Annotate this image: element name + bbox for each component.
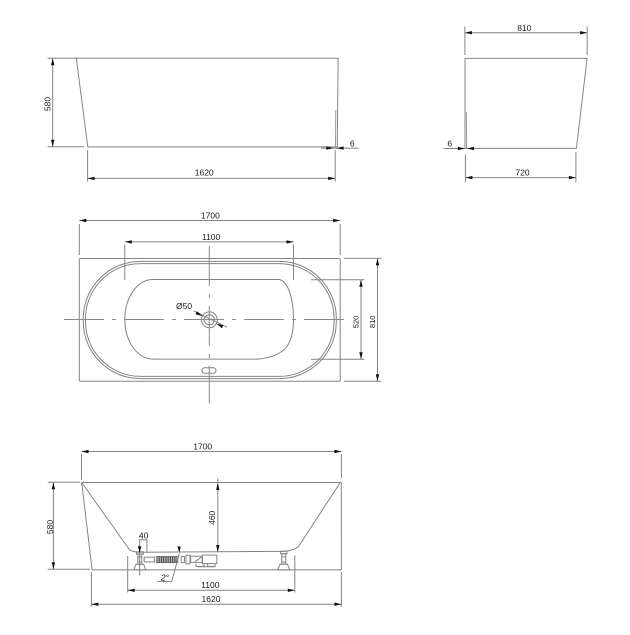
svg-text:520: 520 <box>352 316 361 329</box>
svg-text:810: 810 <box>368 315 377 328</box>
svg-text:6: 6 <box>350 139 355 149</box>
svg-text:1620: 1620 <box>195 168 214 178</box>
svg-text:40: 40 <box>139 531 149 541</box>
svg-text:6: 6 <box>447 139 452 149</box>
svg-text:720: 720 <box>515 167 529 177</box>
svg-text:1100: 1100 <box>201 580 220 590</box>
svg-text:580: 580 <box>45 520 55 534</box>
svg-text:Ø50: Ø50 <box>176 301 192 311</box>
svg-text:1100: 1100 <box>202 232 221 242</box>
svg-text:810: 810 <box>517 23 531 33</box>
svg-text:1620: 1620 <box>202 594 221 604</box>
svg-text:1700: 1700 <box>193 441 212 451</box>
svg-text:460: 460 <box>207 510 217 524</box>
svg-text:580: 580 <box>43 97 53 111</box>
svg-text:2°: 2° <box>160 572 170 582</box>
svg-text:1700: 1700 <box>201 210 220 220</box>
